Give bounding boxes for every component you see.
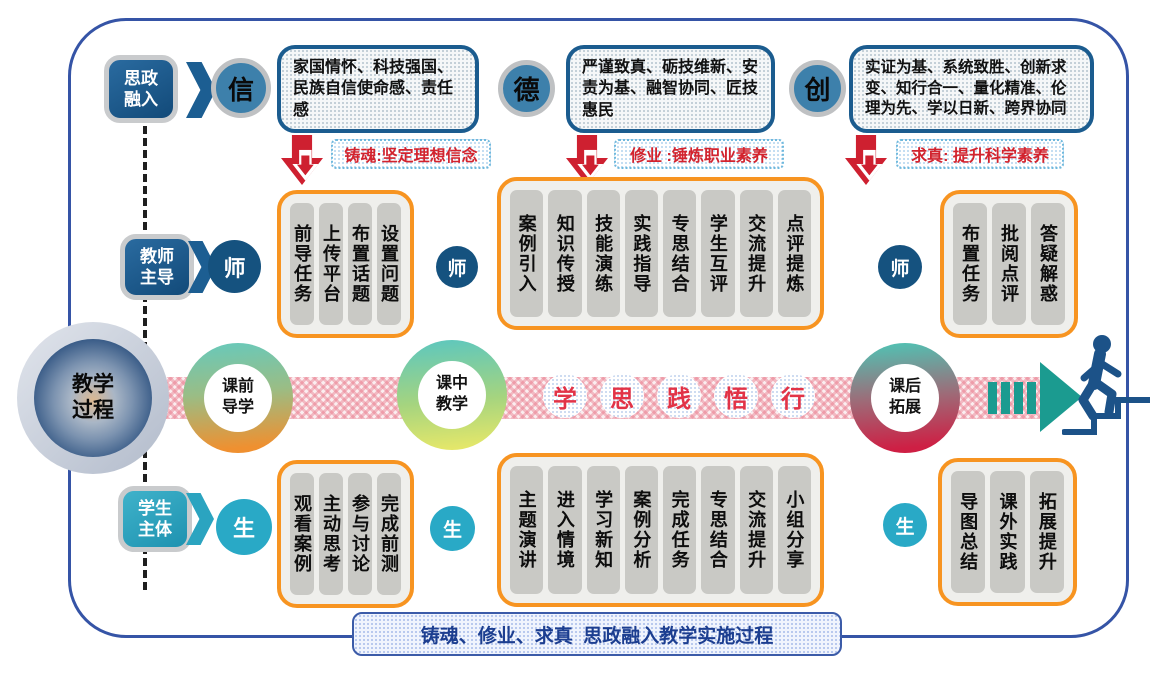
- task-item: 主题演讲: [510, 466, 543, 594]
- concept-circle-chuang: 创: [789, 60, 846, 117]
- concept-circle-de: 德: [498, 60, 555, 117]
- task-item: 实践指导: [625, 190, 658, 317]
- footer-banner: 铸魂、修业、求真 思政融入教学实施过程: [352, 612, 842, 656]
- task-item: 参与讨论: [348, 473, 372, 595]
- stage-ring-after-class: 课后 拓展: [850, 343, 960, 453]
- teacher-task-group-post: 布置任务 批阅点评 答疑解惑: [940, 190, 1078, 338]
- keyword-circle: 学: [543, 374, 587, 418]
- stage-label-qiuzhen: 求真: 提升科学素养: [896, 139, 1064, 169]
- keyword-circle: 思: [600, 374, 644, 418]
- diagram-canvas: 思政 融入 信 家国情怀、科技强国、民族自信使命感、责任感 德 严谨致真、砺技维…: [0, 0, 1151, 676]
- task-item: 交流提升: [740, 466, 773, 594]
- climbing-stairs-icon: [1062, 332, 1150, 437]
- segmented-arrow-icon: [1001, 382, 1010, 414]
- student-task-group-in: 主题演讲 进入情境 学习新知 案例分析 完成任务 专思结合 交流提升 小组分享: [497, 453, 824, 607]
- process-main-label: 教学 过程: [34, 339, 152, 457]
- ideology-badge: 思政 融入: [104, 55, 178, 123]
- task-item: 布置任务: [953, 203, 987, 325]
- task-item: 技能演练: [587, 190, 620, 317]
- task-item: 导图总结: [951, 471, 985, 593]
- teacher-badge: 教师 主导: [120, 234, 194, 300]
- concept-box: 家国情怀、科技强国、民族自信使命感、责任感: [277, 45, 479, 133]
- task-item: 设置问题: [377, 203, 401, 325]
- segmented-arrow-icon: [988, 382, 997, 414]
- segmented-arrow-icon: [1014, 382, 1023, 414]
- keyword-circle: 悟: [714, 374, 758, 418]
- task-item: 主动思考: [319, 473, 343, 595]
- task-item: 拓展提升: [1030, 471, 1064, 593]
- concept-circle-xin: 信: [211, 58, 271, 118]
- keyword-circle: 行: [771, 374, 815, 418]
- task-item: 案例分析: [625, 466, 658, 594]
- task-item: 布置话题: [348, 203, 372, 325]
- task-item: 课外实践: [990, 471, 1024, 593]
- teacher-circle: 师: [208, 240, 261, 293]
- task-item: 完成前测: [377, 473, 401, 595]
- task-item: 答疑解惑: [1031, 203, 1065, 325]
- stage-ring-pre-class: 课前 导学: [183, 343, 293, 453]
- student-task-group-post: 导图总结 课外实践 拓展提升: [938, 458, 1077, 606]
- task-item: 交流提升: [740, 190, 773, 317]
- down-arrow-icon: [281, 135, 323, 185]
- down-arrow-icon: [845, 135, 887, 185]
- teacher-circle: 师: [878, 245, 922, 289]
- concept-box: 实证为基、系统致胜、创新求变、知行合一、量化精准、伦理为先、学以日新、跨界协同: [849, 45, 1094, 133]
- task-item: 进入情境: [548, 466, 581, 594]
- task-item: 批阅点评: [992, 203, 1026, 325]
- task-item: 学生互评: [701, 190, 734, 317]
- task-item: 点评提炼: [778, 190, 811, 317]
- task-item: 学习新知: [587, 466, 620, 594]
- student-task-group-pre: 观看案例 主动思考 参与讨论 完成前测: [277, 460, 414, 608]
- task-item: 前导任务: [290, 203, 314, 325]
- concept-box: 严谨致真、砺技维新、安责为基、融智协同、匠技惠民: [566, 45, 775, 133]
- task-item: 小组分享: [778, 466, 811, 594]
- segmented-arrow-icon: [1027, 382, 1036, 414]
- teacher-circle: 师: [436, 246, 478, 288]
- task-item: 专思结合: [663, 190, 696, 317]
- student-circle: 生: [883, 503, 927, 547]
- student-circle: 生: [430, 506, 475, 551]
- teacher-task-group-pre: 前导任务 上传平台 布置话题 设置问题: [277, 190, 414, 338]
- task-item: 知识传授: [548, 190, 581, 317]
- keyword-circle: 践: [657, 374, 701, 418]
- process-main-circle: 教学 过程: [17, 322, 169, 474]
- stage-ring-in-class: 课中 教学: [397, 340, 507, 450]
- task-item: 观看案例: [290, 473, 314, 595]
- task-item: 完成任务: [663, 466, 696, 594]
- stage-label-xiuye: 修业 :锤炼职业素养: [614, 139, 784, 169]
- teacher-task-group-in: 案例引入 知识传授 技能演练 实践指导 专思结合 学生互评 交流提升 点评提炼: [497, 177, 824, 330]
- task-item: 案例引入: [510, 190, 543, 317]
- task-item: 专思结合: [701, 466, 734, 594]
- student-badge: 学生 主体: [118, 486, 192, 552]
- stage-label-zhuhun: 铸魂:坚定理想信念: [331, 139, 491, 169]
- task-item: 上传平台: [319, 203, 343, 325]
- student-circle: 生: [216, 499, 272, 555]
